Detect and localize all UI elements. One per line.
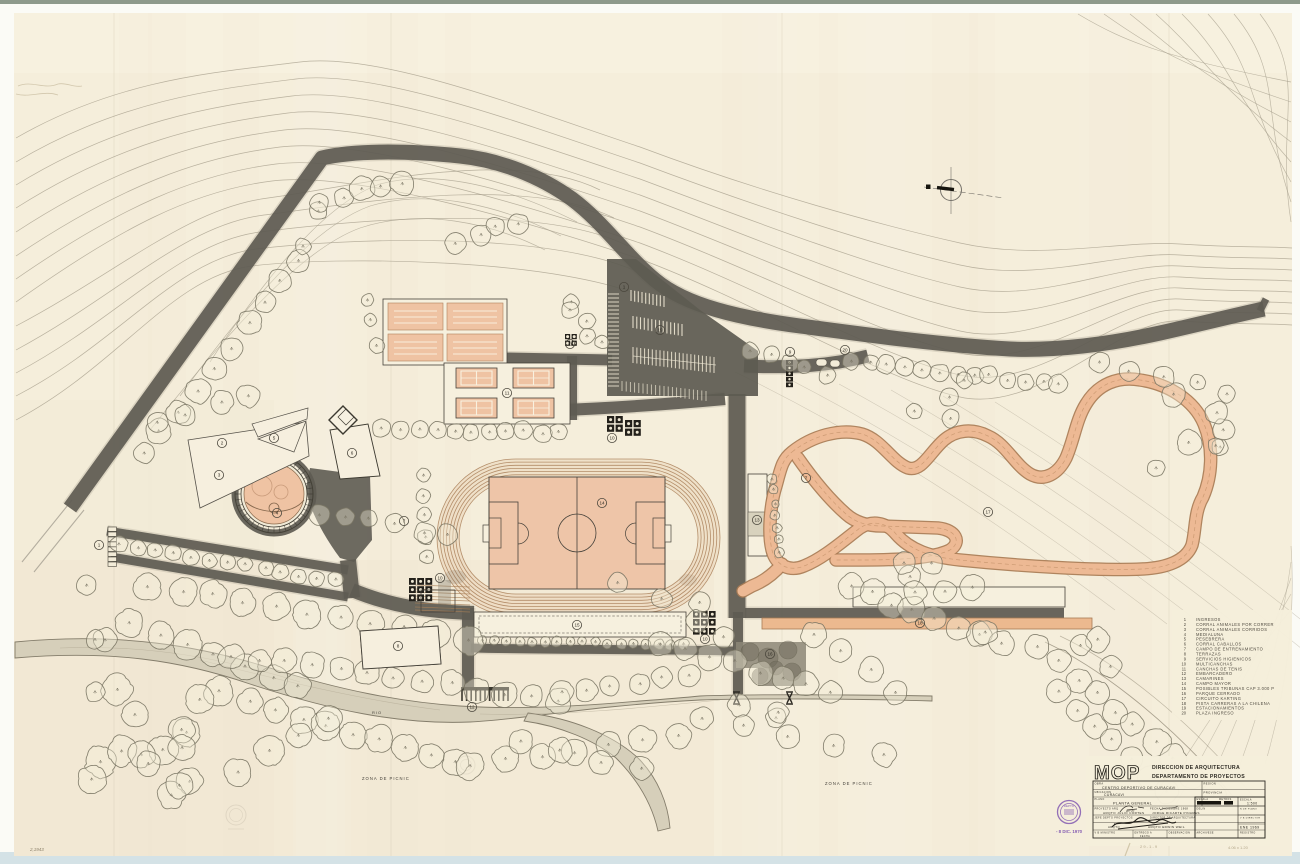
svg-text:8: 8: [397, 644, 400, 649]
svg-text:PLANO: PLANO: [1095, 798, 1105, 801]
svg-text:9: 9: [789, 350, 792, 355]
svg-text:4.06 x 1.20: 4.06 x 1.20: [1228, 845, 1249, 850]
svg-text:16: 16: [767, 652, 773, 657]
svg-text:20: 20: [1181, 711, 1186, 716]
svg-text:2 9 - 1 - 9: 2 9 - 1 - 9: [1140, 844, 1158, 849]
svg-text:7: 7: [805, 476, 808, 481]
svg-text:PLAZA INGRESO: PLAZA INGRESO: [1196, 711, 1234, 716]
svg-text:ENE 1969: ENE 1969: [1240, 826, 1260, 830]
svg-text:- 8 DIC. 1970: - 8 DIC. 1970: [1056, 829, 1083, 834]
svg-text:ESCALA: ESCALA: [1197, 798, 1209, 801]
svg-text:AV-05: AV-05: [1126, 808, 1135, 813]
svg-text:DEPTO: DEPTO: [1064, 804, 1075, 808]
svg-text:REGISTRO: REGISTRO: [1240, 832, 1256, 835]
svg-text:DIRECCION DE ARQUITECTURA: DIRECCION DE ARQUITECTURA: [1152, 765, 1240, 771]
svg-text:PROVINCIA: PROVINCIA: [1204, 791, 1223, 795]
svg-text:CURACAVI: CURACAVI: [1104, 793, 1124, 797]
svg-text:REGION: REGION: [1204, 782, 1217, 786]
svg-text:FECHA DICIEMBRE 1968: FECHA DICIEMBRE 1968: [1150, 807, 1188, 811]
svg-text:12: 12: [469, 705, 475, 710]
svg-text:ARQTO EDWIN WEIL: ARQTO EDWIN WEIL: [1148, 825, 1185, 829]
svg-text:4: 4: [276, 511, 279, 516]
svg-text:ZONA DE PICNIC: ZONA DE PICNIC: [825, 781, 873, 786]
svg-text:OBSERVACION: OBSERVACION: [1169, 832, 1191, 835]
svg-text:1:500: 1:500: [1247, 802, 1258, 806]
svg-text:18: 18: [917, 621, 923, 626]
svg-text:10: 10: [702, 637, 708, 642]
svg-text:2: 2: [221, 441, 224, 446]
svg-text:14: 14: [599, 501, 605, 506]
svg-text:15: 15: [574, 623, 580, 628]
svg-text:ZONA DE PICNIC: ZONA DE PICNIC: [362, 776, 410, 781]
svg-text:5: 5: [273, 436, 276, 441]
svg-text:METROS: METROS: [1219, 798, 1232, 801]
svg-text:OBRA: OBRA: [1095, 782, 1104, 786]
svg-text:10: 10: [437, 576, 443, 581]
svg-text:V B DIRECTOR: V B DIRECTOR: [1240, 818, 1260, 820]
svg-text:DEPARTAMENTO DE PROYECTOS: DEPARTAMENTO DE PROYECTOS: [1152, 774, 1245, 780]
svg-text:11: 11: [568, 342, 573, 347]
svg-text:20: 20: [842, 348, 848, 353]
svg-text:19: 19: [657, 328, 663, 333]
svg-text:V B MINISTRO: V B MINISTRO: [1095, 832, 1116, 835]
svg-text:3: 3: [218, 473, 221, 478]
svg-text:ARCHIVESE: ARCHIVESE: [1197, 832, 1214, 835]
svg-text:13: 13: [754, 518, 760, 523]
svg-text:10: 10: [609, 436, 615, 441]
svg-text:FECHA: FECHA: [1140, 835, 1150, 838]
svg-text:7: 7: [403, 519, 406, 524]
svg-text:11: 11: [505, 391, 510, 396]
svg-text:JORGE RICARTE PINARES: JORGE RICARTE PINARES: [1152, 811, 1200, 815]
svg-text:PLANTA GENERAL: PLANTA GENERAL: [1113, 802, 1152, 806]
svg-text:2,1943: 2,1943: [29, 847, 44, 852]
svg-text:CENTRO DEPORTIVO DE CURACAV: CENTRO DEPORTIVO DE CURACAVI: [1102, 786, 1176, 790]
svg-text:RIO: RIO: [372, 710, 382, 715]
svg-text:17: 17: [985, 510, 991, 515]
svg-text:JEFE DEPTO PROYECTOS: JEFE DEPTO PROYECTOS: [1095, 817, 1133, 820]
svg-text:N DE PLANO: N DE PLANO: [1240, 808, 1257, 811]
svg-text:1: 1: [623, 285, 626, 290]
svg-text:ARQTO JULIO CORTES: ARQTO JULIO CORTES: [1103, 811, 1144, 815]
svg-text:6: 6: [351, 451, 354, 456]
svg-text:1: 1: [98, 543, 101, 548]
